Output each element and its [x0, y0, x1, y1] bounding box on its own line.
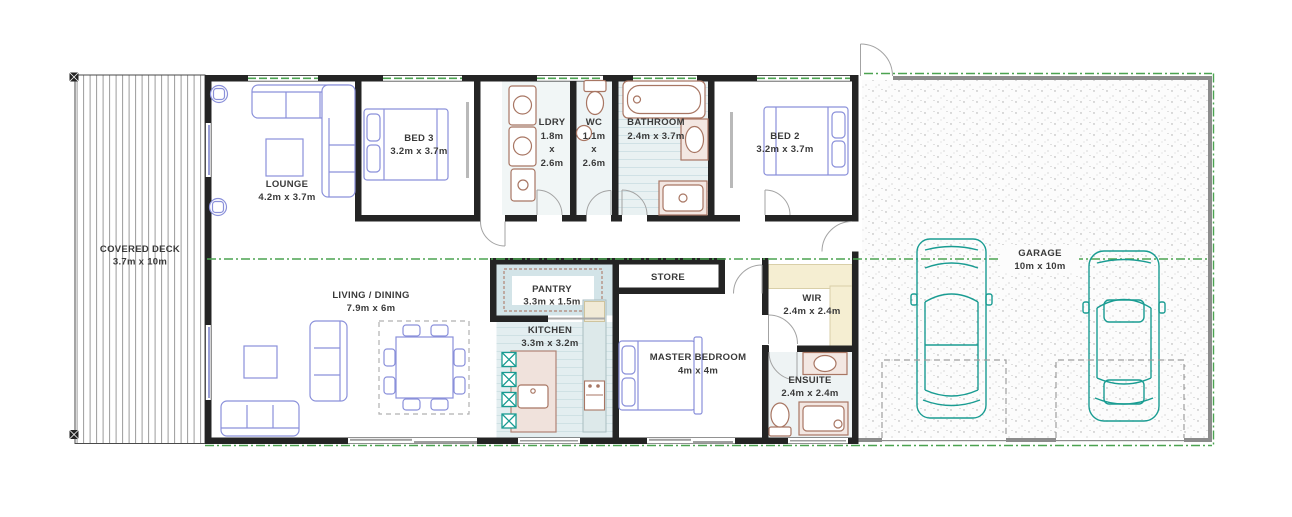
wir-dims: 2.4m x 2.4m [783, 306, 840, 317]
ensuite-shower [799, 402, 848, 435]
wall-hall-b [505, 215, 537, 222]
bed2-wardrobe-panel [730, 112, 733, 188]
laundry-dim1: 1.8m [541, 131, 564, 142]
bathroom-name: BATHROOM [627, 117, 685, 128]
covered-deck-dims: 3.7m x 10m [113, 257, 167, 268]
wall-hall-a [355, 215, 474, 222]
bed3-door [481, 222, 506, 247]
kitchen-island [511, 351, 556, 432]
lounge-name: LOUNGE [266, 179, 308, 190]
garage-wall-bottom-c [1184, 438, 1212, 442]
garage-door-sill-1 [882, 440, 1006, 441]
wall-hall-f [765, 215, 852, 222]
lounge-coffee-table [266, 139, 303, 176]
bed3-bed [364, 109, 448, 180]
wall-hall-d [611, 215, 622, 222]
garage-wall-bottom-b [1006, 438, 1056, 442]
laundry-dim3: 2.6m [541, 158, 564, 169]
wall-wir-left-upper [762, 258, 769, 315]
laundry-appliances [509, 86, 536, 201]
wc-dim3: 2.6m [583, 158, 606, 169]
wc-dim2: x [591, 144, 597, 155]
wall-bed3-hall [474, 81, 481, 222]
ensuite-vanity [803, 353, 847, 375]
wall-wc-bath [612, 81, 619, 222]
floor-plan-drawing: COVERED DECK 3.7m x 10m LOUNGE 4.2m x 3.… [0, 0, 1292, 517]
wall-store-right [719, 258, 726, 294]
lounge-side-table-top [211, 86, 228, 103]
store-name: STORE [651, 272, 685, 283]
garage-wall-bottom-a [859, 438, 883, 442]
kitchen-oven [585, 381, 605, 410]
dining-set [379, 321, 469, 414]
living-sofa-bottom [221, 401, 299, 436]
laundry-name: LDRY [539, 117, 566, 128]
bed3-dims: 3.2m x 3.7m [390, 146, 447, 157]
garage-name: GARAGE [1018, 248, 1062, 259]
wall-kitchen-master [613, 258, 620, 438]
wall-lounge-bed3 [355, 81, 362, 222]
wall-pantry-bottom [490, 316, 548, 323]
label-lounge: LOUNGE 4.2m x 3.7m [258, 179, 315, 203]
ensuite-dims: 2.4m x 2.4m [781, 388, 838, 399]
label-living-dining: LIVING / DINING 7.9m x 6m [332, 290, 409, 314]
wall-ldry-wc [570, 81, 577, 222]
living-sofa-side [310, 321, 347, 401]
bed2-door [765, 190, 790, 215]
floor-plan: COVERED DECK 3.7m x 10m LOUNGE 4.2m x 3.… [0, 0, 1292, 517]
ensuite-toilet [769, 403, 791, 436]
wir-door [769, 315, 798, 344]
bed3-wardrobe-panel [466, 102, 469, 178]
deck-post-top [70, 73, 79, 82]
garage-wall-top [893, 76, 1208, 80]
ensuite-name: ENSUITE [788, 375, 831, 386]
garage-dims: 10m x 10m [1014, 261, 1065, 272]
garage-wall-right [1208, 76, 1212, 442]
hall-garage-opening [852, 222, 859, 252]
deck-post-bottom [70, 430, 79, 439]
laundry-dim2: x [549, 144, 555, 155]
bathtub [623, 81, 705, 118]
kitchen-name: KITCHEN [528, 325, 572, 336]
lounge-side-table-bottom [210, 199, 227, 216]
wall-bath-bed2 [708, 81, 715, 222]
wc-toilet [584, 81, 606, 115]
bathroom-shower [659, 181, 707, 215]
wall-wir-ensuite-a [762, 346, 769, 353]
wall-wir-left-lower [762, 345, 769, 438]
lounge-dims: 4.2m x 3.7m [258, 192, 315, 203]
living-dining-dims: 7.9m x 6m [347, 303, 396, 314]
wall-hall-e [647, 215, 740, 222]
pantry-name: PANTRY [532, 284, 572, 295]
bed2-name: BED 2 [770, 131, 799, 142]
wir-shelf-top [769, 265, 853, 289]
wall-pantry-left [490, 258, 497, 322]
pantry-dims: 3.3m x 1.5m [523, 297, 580, 308]
kitchen-dims: 3.3m x 3.2m [521, 338, 578, 349]
master-bedroom-dims: 4m x 4m [678, 366, 718, 377]
label-store: STORE [651, 272, 685, 283]
wall-hall-c [562, 215, 587, 222]
living-square-table [244, 346, 277, 378]
garage-door-sill-2 [1056, 440, 1184, 441]
master-bedroom-name: MASTER BEDROOM [650, 352, 747, 363]
wir-name: WIR [802, 293, 821, 304]
bed2-dims: 3.2m x 3.7m [756, 144, 813, 155]
bathroom-vanity [681, 119, 708, 160]
master-bedroom-door [734, 265, 763, 294]
wc-name: WC [586, 117, 602, 128]
living-dining-name: LIVING / DINING [332, 290, 409, 301]
wc-dim1: 1.1m [583, 131, 606, 142]
wall-wir-ensuite-b [797, 346, 852, 353]
hall-garage-door [822, 222, 852, 252]
entry-door [861, 44, 893, 76]
bathroom-dims: 2.4m x 3.7m [627, 131, 684, 142]
wall-store-bottom [619, 288, 725, 295]
kitchen-bench-pass [548, 318, 605, 320]
covered-deck-name: COVERED DECK [100, 244, 180, 255]
bed3-name: BED 3 [404, 133, 433, 144]
wir-shelf-right [830, 286, 852, 348]
